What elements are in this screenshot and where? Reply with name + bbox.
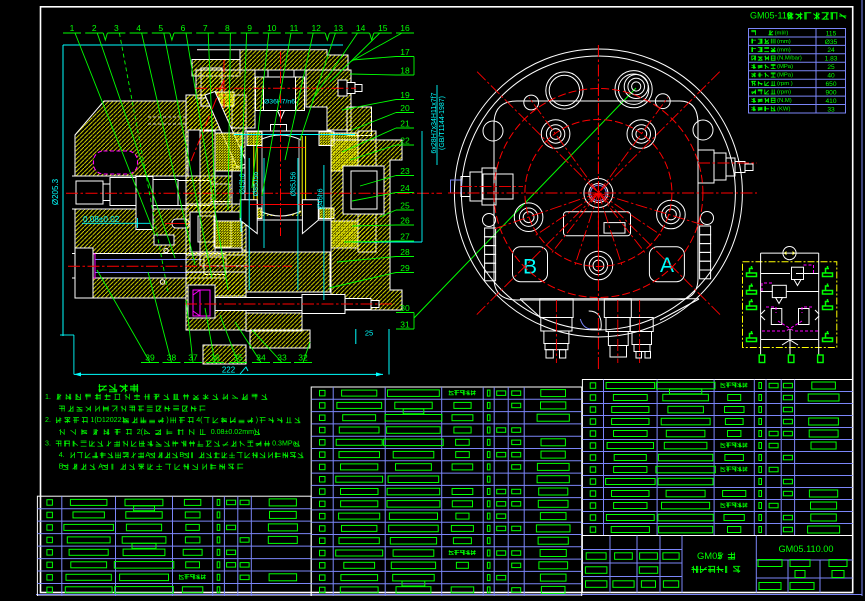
svg-text:650: 650	[825, 81, 836, 88]
svg-text:7: 7	[203, 23, 208, 33]
svg-text:(GB/T1144-1987): (GB/T1144-1987)	[439, 96, 446, 150]
svg-text:(N.M): (N.M)	[777, 98, 792, 104]
svg-text:17: 17	[400, 47, 410, 57]
svg-text:4: 4	[136, 23, 141, 33]
svg-text:115: 115	[826, 30, 837, 37]
svg-text:0.08±0.02mm): 0.08±0.02mm)	[211, 428, 257, 436]
svg-text:GM05: GM05	[697, 550, 723, 561]
svg-text:GM05.110.00: GM05.110.00	[779, 544, 834, 554]
svg-text:Ø46h6: Ø46h6	[318, 188, 325, 209]
svg-text:(ml/r): (ml/r)	[775, 30, 789, 36]
svg-text:23: 23	[400, 166, 410, 176]
svg-text:30: 30	[400, 303, 410, 313]
svg-text:18: 18	[400, 66, 410, 76]
svg-text:16: 16	[400, 23, 410, 33]
svg-text:0.3MPa: 0.3MPa	[272, 440, 297, 448]
svg-text:2(: 2(	[137, 428, 144, 436]
svg-text:28: 28	[400, 247, 410, 257]
svg-text:0.08±0.02: 0.08±0.02	[83, 215, 120, 224]
svg-text:8: 8	[225, 23, 230, 33]
svg-text:2.: 2.	[45, 416, 51, 424]
svg-text:4.: 4.	[59, 451, 65, 459]
svg-text:(rpm): (rpm)	[777, 90, 791, 96]
svg-text:5: 5	[158, 23, 163, 33]
svg-text:900: 900	[825, 89, 836, 96]
svg-text:29: 29	[400, 263, 410, 273]
svg-text:22: 22	[400, 136, 410, 146]
svg-text:(mm): (mm)	[777, 39, 791, 45]
svg-text:25: 25	[827, 64, 835, 71]
svg-text:6x28H7x34H11x7f7: 6x28H7x34H11x7f7	[431, 92, 438, 153]
svg-text:31: 31	[400, 320, 410, 330]
svg-text:19: 19	[400, 90, 410, 100]
svg-text:1: 1	[70, 23, 75, 33]
svg-text:(MPa): (MPa)	[777, 64, 793, 70]
svg-text:33: 33	[277, 353, 287, 363]
svg-text:11: 11	[290, 23, 299, 33]
svg-text:1.83: 1.83	[825, 56, 838, 63]
svg-text:Ø85J56: Ø85J56	[253, 172, 260, 197]
svg-text:): )	[166, 416, 168, 424]
svg-text:12: 12	[311, 23, 321, 33]
svg-text:6: 6	[181, 23, 186, 33]
svg-text:38: 38	[167, 353, 177, 363]
svg-text:1.: 1.	[45, 393, 51, 401]
svg-text:9: 9	[247, 23, 252, 33]
svg-text:(rpm ): (rpm )	[777, 81, 793, 87]
svg-text:27: 27	[400, 232, 410, 242]
svg-text:33: 33	[827, 106, 835, 113]
svg-text:25: 25	[365, 329, 373, 338]
svg-text:3: 3	[114, 23, 119, 33]
svg-text:410: 410	[825, 98, 836, 105]
svg-text:24: 24	[827, 47, 835, 54]
svg-text:14: 14	[356, 23, 366, 33]
svg-text:15: 15	[378, 23, 388, 33]
svg-text:GM05-110: GM05-110	[750, 11, 792, 21]
svg-text:A: A	[660, 254, 674, 277]
svg-text:4(: 4(	[196, 416, 203, 424]
svg-text:21: 21	[400, 119, 410, 129]
svg-text:(KW): (KW)	[777, 106, 790, 112]
svg-text:25: 25	[400, 201, 410, 211]
svg-text:2: 2	[92, 23, 97, 33]
svg-text:222: 222	[222, 366, 236, 375]
svg-text:Ø205.3: Ø205.3	[51, 178, 60, 205]
svg-text:13: 13	[334, 23, 344, 33]
svg-text:20: 20	[400, 103, 410, 113]
svg-text:24: 24	[400, 183, 410, 193]
svg-text:Ø85J56: Ø85J56	[291, 172, 298, 197]
svg-text:Ø35: Ø35	[825, 39, 838, 46]
svg-text:1(D120221: 1(D120221	[90, 416, 125, 424]
svg-text:(MPa): (MPa)	[777, 73, 793, 79]
svg-text:(N.M/bar): (N.M/bar)	[777, 56, 802, 62]
svg-text:3.: 3.	[45, 440, 51, 448]
svg-text:): )	[256, 416, 258, 424]
svg-text:10: 10	[267, 23, 277, 33]
svg-text:(mm): (mm)	[777, 47, 791, 53]
svg-text:26: 26	[400, 216, 410, 226]
svg-text:40: 40	[827, 73, 835, 80]
